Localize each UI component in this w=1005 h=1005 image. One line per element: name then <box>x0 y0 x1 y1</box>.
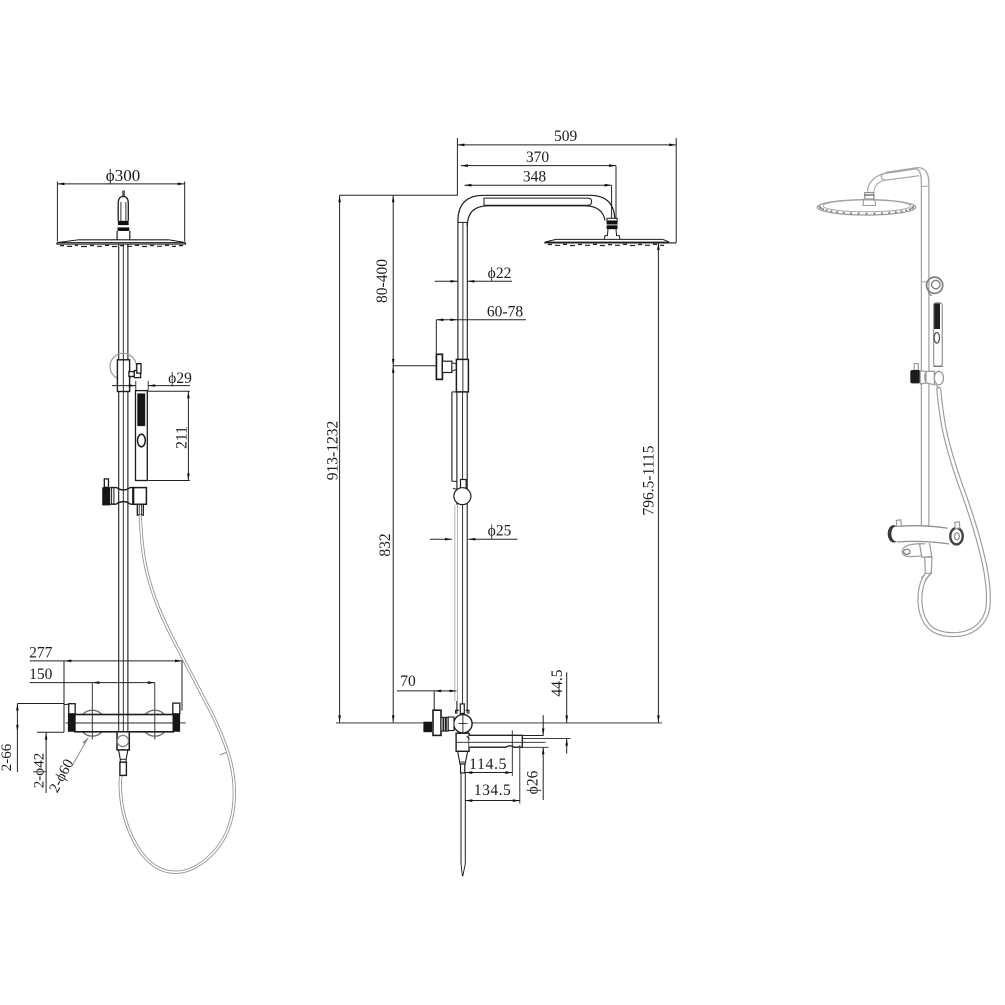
svg-text:134.5: 134.5 <box>474 782 511 799</box>
svg-text:ϕ26: ϕ26 <box>525 770 542 794</box>
svg-text:370: 370 <box>526 149 550 166</box>
svg-text:348: 348 <box>523 169 547 186</box>
svg-text:832: 832 <box>377 533 394 556</box>
svg-text:114.5: 114.5 <box>469 756 507 773</box>
svg-text:ϕ29: ϕ29 <box>168 370 192 387</box>
svg-text:44.5: 44.5 <box>549 669 566 696</box>
svg-text:2-ϕ42: 2-ϕ42 <box>32 753 48 788</box>
svg-text:150: 150 <box>29 666 53 683</box>
svg-text:913-1232: 913-1232 <box>325 421 342 480</box>
svg-text:2-66: 2-66 <box>0 743 15 771</box>
svg-text:796.5-1115: 796.5-1115 <box>641 445 658 515</box>
svg-text:80-400: 80-400 <box>374 259 391 303</box>
svg-text:211: 211 <box>173 426 190 449</box>
svg-text:277: 277 <box>29 644 53 661</box>
svg-text:ϕ22: ϕ22 <box>488 265 512 282</box>
svg-text:ϕ25: ϕ25 <box>488 523 512 540</box>
svg-text:60-78: 60-78 <box>487 303 523 320</box>
svg-text:ϕ300: ϕ300 <box>106 166 140 185</box>
svg-text:509: 509 <box>554 128 578 145</box>
svg-text:70: 70 <box>400 673 416 690</box>
